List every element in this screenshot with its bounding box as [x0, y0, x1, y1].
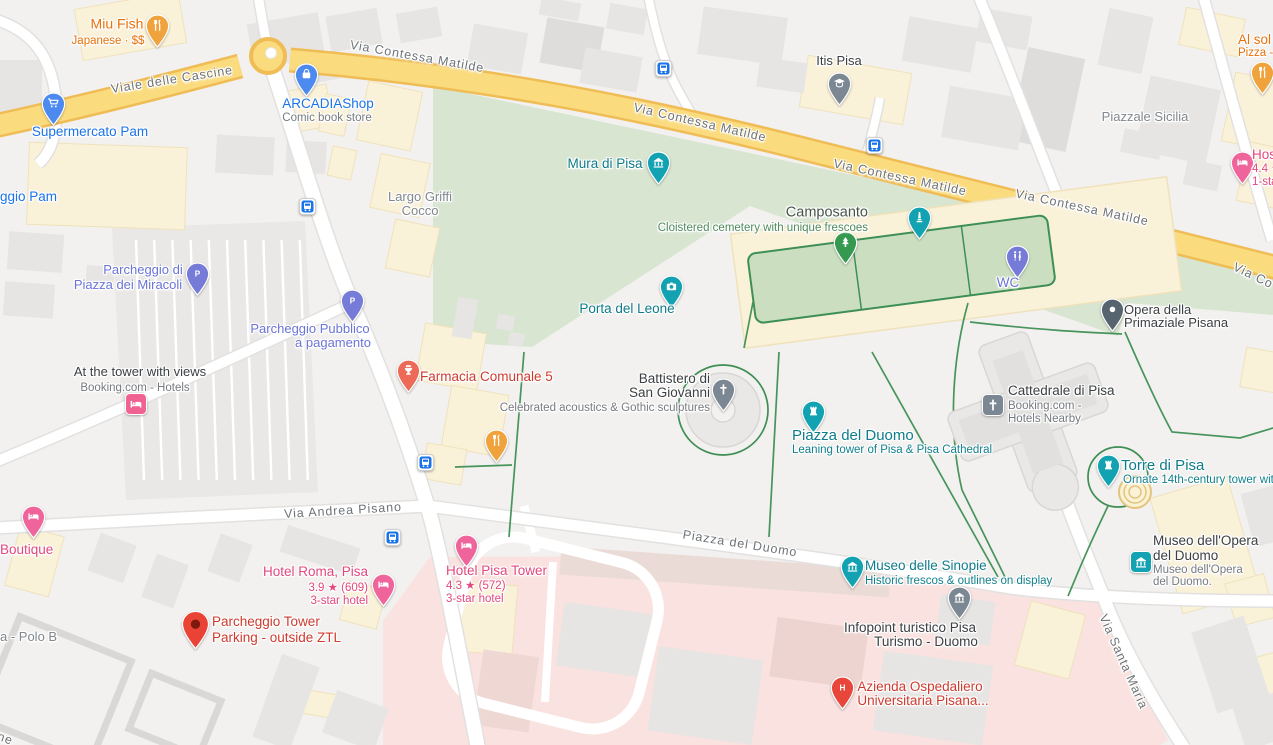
museo-dell-opera-del-duomo-museum-pin-icon[interactable]: [1130, 551, 1152, 573]
piazza-del-duomo-label[interactable]: Leaning tower of Pisa & Pisa Cathedral: [792, 444, 992, 456]
hostel-top-right-bed-pin-icon[interactable]: [1230, 151, 1255, 185]
mura-di-pisa-museum-pin-icon[interactable]: [646, 151, 671, 185]
battistero-di-san-giovanni-cross-pin-icon[interactable]: [711, 378, 736, 412]
bus-stop-icon[interactable]: [417, 454, 434, 471]
farmacia-comunale-5-pharmacy-pin-icon[interactable]: [396, 359, 421, 393]
farmacia-comunale-5-label[interactable]: Farmacia Comunale 5: [420, 370, 553, 384]
street-label: Piazza del Duomo: [682, 528, 798, 559]
map-overlay-layer: Viale delle CascineVia Contessa MatildeV…: [0, 0, 1273, 745]
area-label: Cocco: [402, 204, 439, 218]
cattedrale-di-pisa-label[interactable]: Cattedrale di Pisa: [1008, 384, 1115, 398]
street-label: Via Andrea Pisano: [284, 501, 403, 521]
at-the-tower-with-views-label[interactable]: Booking.com - Hotels: [80, 382, 189, 394]
piazza-del-duomo-label[interactable]: Piazza del Duomo: [792, 428, 914, 444]
torre-di-pisa-label[interactable]: Torre di Pisa: [1121, 458, 1204, 474]
wc-label[interactable]: WC: [997, 276, 1020, 290]
miu-fish-restaurant-pin-icon[interactable]: [145, 14, 170, 48]
street-label: Viale delle Cascine: [110, 64, 234, 96]
hotel-pisa-tower-label[interactable]: 4.3 ★ (572): [446, 580, 506, 592]
hotel-pisa-tower-label[interactable]: Hotel Pisa Tower: [446, 564, 547, 578]
camposanto-tree-pin-icon[interactable]: [833, 231, 858, 265]
parcheggio-piazza-dei-miracoli-label[interactable]: Parcheggio di: [103, 263, 183, 277]
museo-dell-opera-del-duomo-label[interactable]: Museo dell'Opera: [1153, 564, 1243, 576]
azienda-ospedaliero-H-pin-icon[interactable]: H: [830, 676, 855, 710]
museo-dell-opera-del-duomo-label[interactable]: del Duomo: [1153, 549, 1218, 563]
wc-toilets-pin-icon[interactable]: [1005, 245, 1030, 279]
area-label: Largo Griffi: [388, 190, 452, 204]
hostel-top-right-label[interactable]: Hos: [1252, 148, 1273, 162]
arcadia-shop-label[interactable]: Comic book store: [282, 112, 371, 124]
supermercato-pam-label[interactable]: Supermercato Pam: [32, 125, 148, 139]
infopoint-turistico-label[interactable]: Turismo - Duomo: [874, 635, 978, 649]
restaurant-via-roma-restaurant-pin-icon[interactable]: [484, 429, 509, 463]
battistero-di-san-giovanni-label[interactable]: Celebrated acoustics & Gothic sculptures: [500, 402, 710, 414]
map-canvas[interactable]: Viale delle CascineVia Contessa MatildeV…: [0, 0, 1273, 745]
al-sole-pizza-label[interactable]: Pizza -: [1238, 47, 1273, 59]
camposanto-monument-monument-pin-icon[interactable]: [907, 206, 932, 240]
hotel-roma-pisa-label[interactable]: 3-star hotel: [310, 595, 368, 607]
cattedrale-di-pisa-label[interactable]: Booking.com -: [1008, 400, 1082, 412]
supermercato-pam-cart-pin-icon[interactable]: [41, 92, 66, 126]
street-label: Via Contessa Matilde: [632, 101, 767, 144]
boutique-hotel-bed-pin-icon[interactable]: [21, 505, 46, 539]
at-the-tower-with-views-bed-pin-icon[interactable]: [125, 393, 147, 415]
hotel-roma-pisa-bed-pin-icon[interactable]: [371, 573, 396, 607]
parcheggio-pubblico-P-pin-icon[interactable]: P: [340, 289, 365, 323]
parcheggio-tower-parking-marker-pin-icon[interactable]: [181, 610, 210, 650]
bus-stop-icon[interactable]: [655, 60, 672, 77]
mura-di-pisa-label[interactable]: Mura di Pisa: [567, 157, 642, 171]
torre-di-pisa-label[interactable]: Ornate 14th-century tower with: [1123, 474, 1273, 486]
itis-pisa-label[interactable]: Itis Pisa: [816, 54, 862, 68]
museo-dell-opera-del-duomo-label[interactable]: Museo dell'Opera: [1153, 534, 1258, 548]
at-the-tower-with-views-label[interactable]: At the tower with views: [74, 365, 206, 379]
museo-delle-sinopie-label[interactable]: Museo delle Sinopie: [865, 559, 987, 573]
parcheggio-tower-parking-label[interactable]: Parcheggio Tower: [212, 615, 320, 629]
parcheggio-piazza-dei-miracoli-label[interactable]: Piazza dei Miracoli: [74, 278, 182, 292]
parcheggio-tower-parking-label[interactable]: Parking - outside ZTL: [212, 631, 341, 645]
parcheggio-piazza-dei-miracoli-P-pin-icon[interactable]: P: [185, 262, 210, 296]
street-label: ne: [0, 730, 15, 745]
miu-fish-label[interactable]: Japanese · $$: [72, 35, 145, 47]
bus-stop-icon[interactable]: [866, 137, 883, 154]
cattedrale-di-pisa-label[interactable]: Hotels Nearby: [1008, 413, 1081, 425]
bus-stop-icon[interactable]: [384, 529, 401, 546]
torre-di-pisa-fort-pin-icon[interactable]: [1096, 454, 1121, 488]
bus-stop-icon[interactable]: [299, 198, 316, 215]
street-label: Via Contessa Matilde: [349, 39, 485, 76]
street-label: Via Santa Maria: [1096, 613, 1150, 712]
al-sole-pizza-label[interactable]: Al sol: [1238, 33, 1271, 47]
miu-fish-label[interactable]: Miu Fish: [91, 17, 144, 32]
hostel-top-right-label[interactable]: 4.4 ★: [1252, 163, 1273, 175]
parcheggio-pam-label[interactable]: ggio Pam: [0, 190, 57, 204]
hotel-roma-pisa-label[interactable]: Hotel Roma, Pisa: [263, 565, 368, 579]
azienda-ospedaliero-label[interactable]: Universitaria Pisana...: [857, 694, 988, 708]
camposanto-label[interactable]: Cloistered cemetery with unique frescoes: [658, 222, 868, 234]
cattedrale-di-pisa-cross-pin-icon[interactable]: [982, 394, 1004, 416]
museo-dell-opera-del-duomo-label[interactable]: del Duomo.: [1153, 576, 1212, 588]
svg-text:P: P: [349, 296, 355, 305]
arcadia-shop-bag-pin-icon[interactable]: [294, 63, 319, 97]
parcheggio-pubblico-label[interactable]: Parcheggio Pubblico: [250, 322, 369, 336]
boutique-hotel-label[interactable]: Boutique: [0, 543, 53, 557]
camposanto-label[interactable]: Camposanto: [786, 205, 868, 220]
battistero-di-san-giovanni-label[interactable]: San Giovanni: [629, 386, 710, 400]
hostel-top-right-label[interactable]: 1-sta: [1252, 176, 1273, 188]
hotel-pisa-tower-label[interactable]: 3-star hotel: [446, 593, 504, 605]
street-label: Via Contessa Matilde: [1014, 187, 1150, 228]
opera-della-primaziale-pisana-dot-pin-icon[interactable]: [1100, 298, 1125, 332]
svg-text:H: H: [839, 683, 845, 692]
al-sole-pizza-restaurant-pin-icon[interactable]: [1250, 61, 1273, 95]
parcheggio-pubblico-label[interactable]: a pagamento: [295, 336, 371, 350]
area-label: Piazzale Sicilia: [1102, 110, 1189, 124]
itis-pisa-school-pin-icon[interactable]: [827, 72, 852, 106]
svg-text:P: P: [194, 269, 200, 278]
infopoint-turistico-museum-pin-icon[interactable]: [947, 586, 972, 620]
opera-della-primaziale-pisana-label[interactable]: Primaziale Pisana: [1124, 316, 1228, 330]
porta-del-leone-label[interactable]: Porta del Leone: [579, 302, 674, 316]
museo-delle-sinopie-museum-pin-icon[interactable]: [840, 555, 865, 589]
hotel-roma-pisa-label[interactable]: 3.9 ★ (609): [308, 582, 368, 594]
arcadia-shop-label[interactable]: ARCADIAShop: [282, 97, 374, 111]
area-label: a - Polo B: [0, 630, 57, 644]
street-label: Via Co: [1231, 261, 1273, 292]
street-label: Via Contessa Matilde: [832, 157, 968, 198]
